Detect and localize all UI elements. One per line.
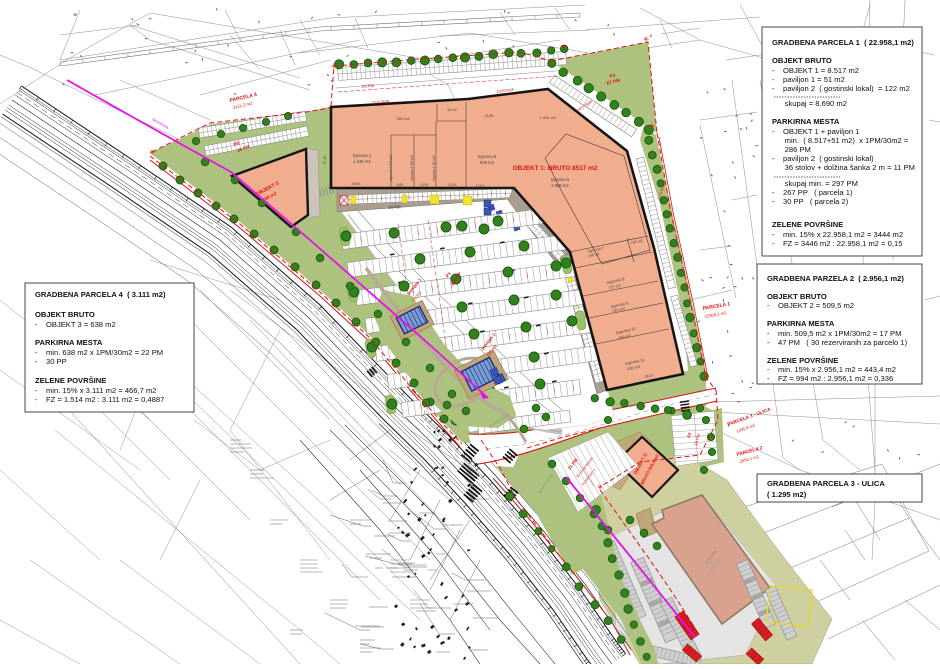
svg-text:18 PM: 18 PM [388,205,401,210]
svg-text:trgovina 2 270 m2: trgovina 2 270 m2 [389,155,393,181]
svg-text:OBJEKT BRUTO: OBJEKT BRUTO [35,310,95,319]
svg-text:- 267 PP ( parcela 1): - 267 PP ( parcela 1) [772,188,853,197]
svg-text:-13,30-: -13,30- [419,183,429,187]
svg-text:ZELENE POVRŠINE: ZELENE POVRŠINE [772,220,843,229]
svg-text:-12,67-: -12,67- [475,184,485,188]
svg-text:- 30 PP: - 30 PP [35,357,67,366]
svg-text:-6,65-: -6,65- [396,183,404,187]
svg-text:- paviljon 2 ( gostinski l: - paviljon 2 ( gostinski lokal) [772,154,874,163]
svg-text:286 PM: 286 PM [772,145,811,154]
svg-text:trgovina 6: trgovina 6 [551,177,570,182]
svg-text:trgovina 5: trgovina 5 [478,154,497,159]
svg-text:GRADBENA PARZELA 2 ( 2.956,1: GRADBENA PARZELA 2 ( 2.956,1 m2) [767,274,904,283]
svg-text:- min. 15% x 3.111 m2 = 466: - min. 15% x 3.111 m2 = 466,7 m2 [35,386,157,395]
svg-text:1.001 m2: 1.001 m2 [540,115,557,120]
svg-text:390 m2: 390 m2 [396,116,410,121]
svg-text:ZELENE POVRŠINE: ZELENE POVRŠINE [767,356,838,365]
svg-text:- FZ = 3446 m2 : 22.958,1 m: - FZ = 3446 m2 : 22.958,1 m2 = 0,15 [772,239,902,248]
svg-text:- 47 PM ( 30 rezerviranih: - 47 PM ( 30 rezerviranih za parcelo 1) [767,338,908,347]
svg-text:-23,89-: -23,89- [484,114,495,118]
svg-text:OBJEKT BRUTO: OBJEKT BRUTO [772,56,832,65]
svg-text:GRADBENA PARCELA 4 ( 3.111 m2: GRADBENA PARCELA 4 ( 3.111 m2) [35,290,166,299]
svg-text:- OBJEKT 1 + paviljon 1: - OBJEKT 1 + paviljon 1 [772,127,859,136]
svg-text:38 m2: 38 m2 [447,108,457,112]
svg-text:- min. 15% x 22.958,1 m2 =: - min. 15% x 22.958,1 m2 = 3444 m2 [772,230,903,239]
svg-text:ZELENE POVRŠINE: ZELENE POVRŠINE [35,376,106,385]
svg-text:OBJEKT BRUTO: OBJEKT BRUTO [767,292,827,301]
svg-text:- OBJEKT 2 = 509,5 m2: - OBJEKT 2 = 509,5 m2 [767,301,854,310]
svg-text:- 30 PP ( parcela 2): - 30 PP ( parcela 2) [772,197,849,206]
svg-text:- paviljon 2 ( gostinski l: - paviljon 2 ( gostinski lokal) = 122 m2 [772,84,910,93]
svg-text:( 1.295 m2): ( 1.295 m2) [767,490,807,499]
svg-text:37,45: 37,45 [323,156,327,165]
svg-text:PARKIRNA MESTA: PARKIRNA MESTA [772,117,840,126]
svg-text:-08,50-: -08,50- [351,182,361,186]
svg-text:1.245 m2: 1.245 m2 [353,159,371,164]
svg-text:-12,50-: -12,50- [447,183,457,187]
svg-text:- OBJEKT 1 = 8.517 m2: - OBJEKT 1 = 8.517 m2 [772,66,859,75]
svg-text:trgovina 3 356 m2: trgovina 3 356 m2 [410,155,414,181]
svg-text:- min. 509,5 m2 x 1PM/30m2: - min. 509,5 m2 x 1PM/30m2 = 17 PM [767,329,901,338]
svg-text:- OBJEKT 3 = 638 m2: - OBJEKT 3 = 638 m2 [35,320,116,329]
svg-text:skupaj min. = 297 PM: skupaj min. = 297 PM [772,179,858,188]
svg-text:PARKIRNA MESTA: PARKIRNA MESTA [767,319,835,328]
svg-text:PARKIRNA MESTA: PARKIRNA MESTA [35,338,103,347]
svg-text:min. ( 8.517+51 m2) x 1PM/30: min. ( 8.517+51 m2) x 1PM/30m2 = [772,136,909,145]
svg-text:skupaj = 8.690 m2: skupaj = 8.690 m2 [772,99,847,108]
svg-text:- FZ = 994 m2 : 2.956,1 m2: - FZ = 994 m2 : 2.956,1 m2 = 0,336 [767,374,893,383]
svg-text:GRADBENA PARCELA 1 ( 22.958,1: GRADBENA PARCELA 1 ( 22.958,1 m2) [772,38,914,47]
svg-text:36 stolov + dolžina šanka 2 m: 36 stolov + dolžina šanka 2 m = 11 PM [772,163,915,172]
svg-text:858 m2: 858 m2 [480,160,495,165]
svg-text:- min. 638 m2 x 1PM/30m2 =: - min. 638 m2 x 1PM/30m2 = 22 PM [35,348,163,357]
svg-text:2.988 m2: 2.988 m2 [551,183,569,188]
svg-text:- FZ = 1.514 m2 : 3.111 m2: - FZ = 1.514 m2 : 3.111 m2 = 0,4887 [35,395,164,404]
svg-text:OBJEKT 1: BRUTO 8517 m2: OBJEKT 1: BRUTO 8517 m2 [513,165,598,172]
svg-text:trgovina 1: trgovina 1 [353,153,372,158]
svg-text:GRADBENA PARCELA 3 - ULICA: GRADBENA PARCELA 3 - ULICA [767,479,885,488]
svg-text:- paviljon 1 = 51 m2: - paviljon 1 = 51 m2 [772,75,845,84]
svg-text:- min. 15% x 2.956,1 m2 = 4: - min. 15% x 2.956,1 m2 = 443,4 m2 [767,365,896,374]
svg-text:trgovina 4 410 m2: trgovina 4 410 m2 [432,155,436,181]
